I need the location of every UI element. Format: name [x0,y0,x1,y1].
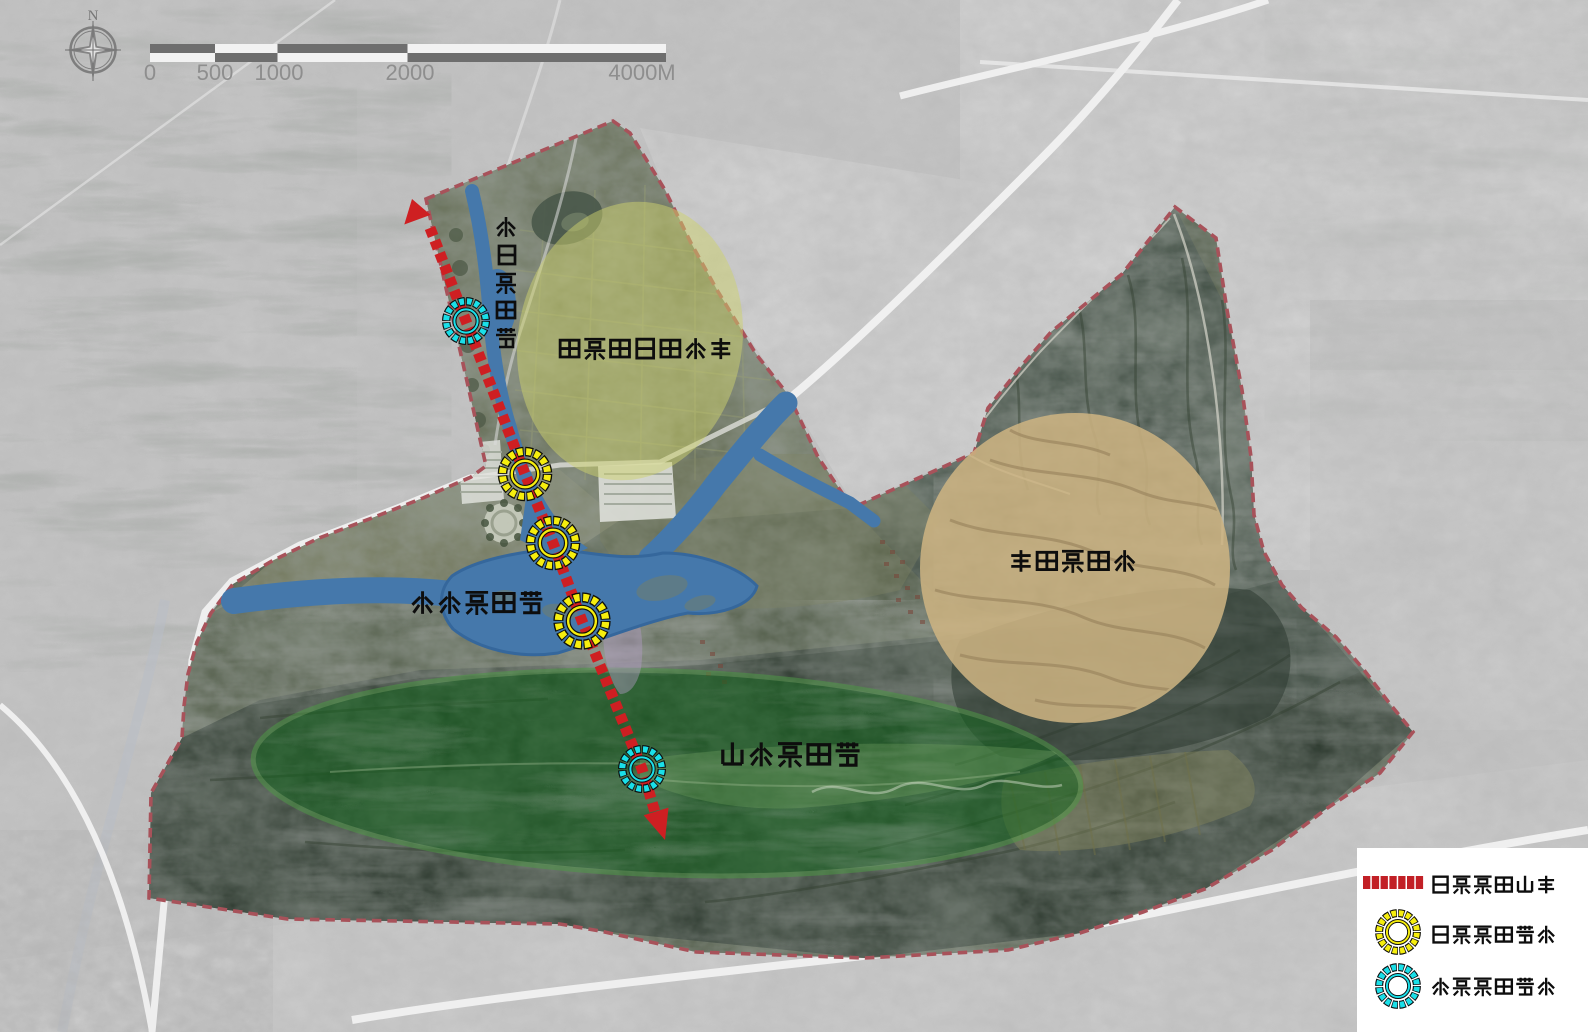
svg-text:2000: 2000 [386,60,435,85]
svg-text:N: N [88,8,99,24]
svg-text:1000: 1000 [255,60,304,85]
svg-text:500: 500 [197,60,234,85]
svg-text:0: 0 [144,60,156,85]
svg-text:4000M: 4000M [608,60,675,85]
